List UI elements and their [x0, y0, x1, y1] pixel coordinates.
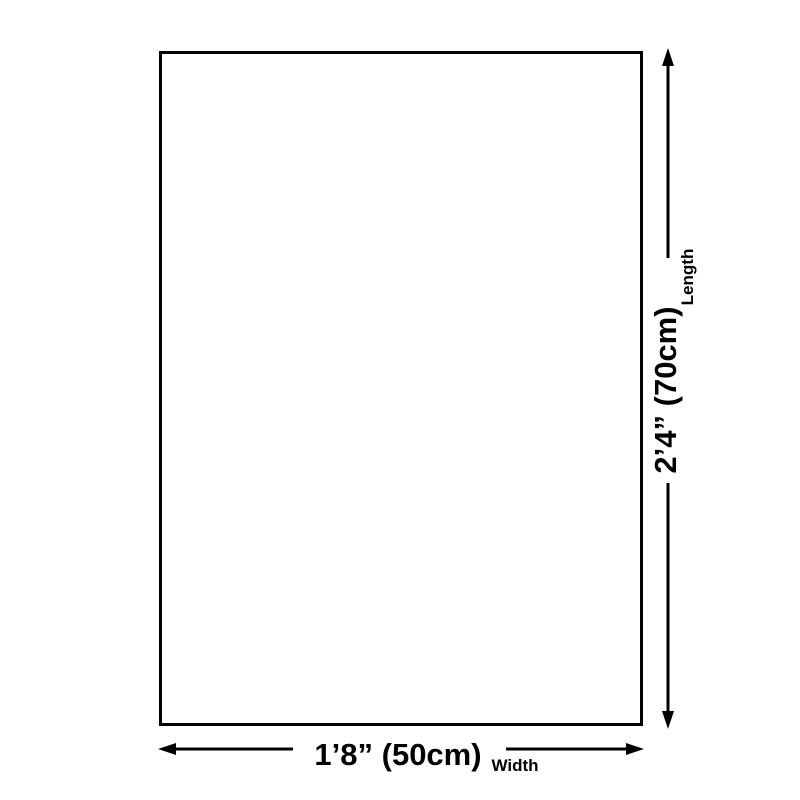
arrow-right-icon	[626, 743, 644, 755]
product-outline	[161, 53, 642, 725]
length-label: Length	[676, 227, 700, 327]
arrow-down-icon	[662, 711, 674, 729]
width-label: Width	[465, 754, 565, 778]
size-diagram: 1’8” (50cm) Width 2’4” (70cm) Length	[0, 0, 800, 800]
